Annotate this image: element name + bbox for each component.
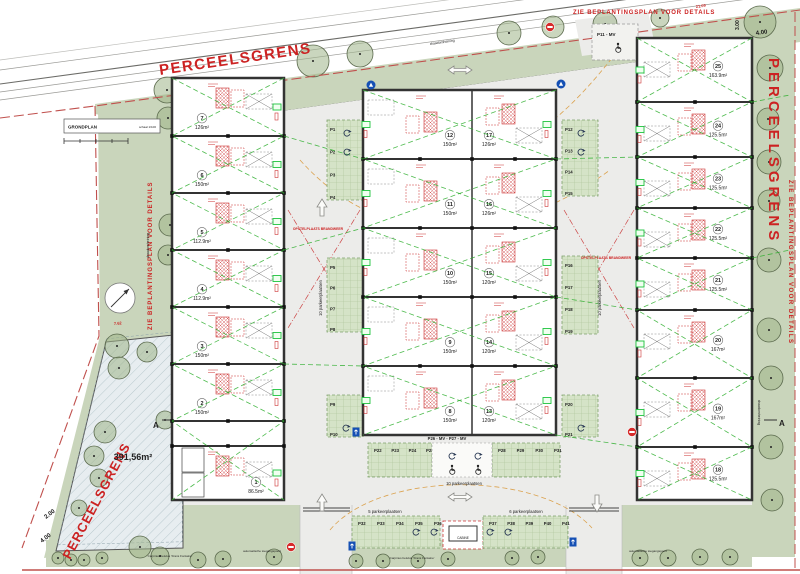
unit-number: 7	[200, 116, 203, 122]
tree-icon	[84, 446, 104, 466]
parking-space-label: P41	[562, 521, 570, 526]
tree-icon	[96, 552, 108, 564]
parking-space-label: P22	[374, 448, 382, 453]
parking-court-left-top: P1P2P3P4	[327, 120, 363, 200]
tree-icon	[94, 421, 116, 443]
dim-top-length: 21.09	[695, 3, 706, 9]
unit-number: 14	[486, 340, 493, 346]
parking-space-label: P1	[330, 127, 336, 132]
tree-icon	[190, 552, 206, 568]
parking-space-label: P13	[565, 148, 573, 153]
parking-space-label: P16	[565, 263, 573, 268]
unit-area: 125.5m²	[709, 186, 728, 192]
fire-note-right: OPSTELPLAATS BRANDWEER	[581, 256, 632, 260]
parking-count-south-right: 6 parkeerplaatsen	[509, 509, 543, 514]
unit-area: 150m²	[195, 410, 210, 416]
unit-area: 150m²	[443, 418, 458, 424]
mandatory-direction-sign-icon	[367, 81, 376, 90]
unit-number: 21	[715, 278, 721, 284]
p11-mv-label: P11 - MV	[597, 32, 616, 37]
parking-space-label: P6	[330, 286, 336, 291]
one-way-sign-icon	[570, 538, 577, 547]
cabine-label: CABINE	[457, 536, 469, 540]
unit-area: 120m²	[482, 280, 497, 286]
unit-area: 163.9m²	[709, 73, 728, 79]
unit-area: 150m²	[443, 211, 458, 217]
boundary-label-right: PERCEELSGRENS	[765, 58, 782, 244]
tree-icon	[215, 551, 231, 567]
tree-species-label-1: Carpinus betulus 'Frans Fontaine'	[148, 554, 193, 558]
green-area-label: 391,56m²	[114, 452, 153, 462]
buildings-layer: 7126m²6150m²5112.9m²4112.9m²3150m²2150m²…	[170, 38, 754, 500]
parking-south-row-right: P37P38P39P40P41	[483, 516, 570, 548]
parking-count-south-left: 5 parkeerplaatsen	[368, 509, 402, 514]
planting-note-top: ZIE BEPLANTINGSPLAN VOOR DETAILS	[573, 10, 715, 16]
tree-icon	[757, 318, 781, 342]
tree-species-label-2: Carpinus betulus 'Frans Fontaine'	[390, 556, 435, 560]
parking-space-label: P20	[565, 402, 573, 407]
parking-mv-section	[432, 443, 492, 477]
no-entry-sign-icon	[287, 543, 296, 552]
parking-count-left-court: 10 parkeerplaatsen	[318, 279, 323, 316]
unit-number: 24	[715, 124, 722, 130]
parking-space-label: P36	[434, 521, 442, 526]
parking-count-right-court: 10 parkeerplaatsen	[597, 279, 602, 316]
parking-court-left-mid: P5P6P7P8	[327, 258, 363, 332]
parking-inner-row-left: P22P23P24P25	[368, 443, 434, 477]
dim-top-height: 3.00	[735, 20, 741, 30]
no-entry-sign-icon	[546, 23, 555, 32]
parking-space-label: P34	[396, 521, 404, 526]
tree-icon	[759, 366, 783, 390]
unit-area: 150m²	[443, 142, 458, 148]
tree-icon	[531, 550, 545, 564]
tree-icon	[441, 552, 455, 566]
parking-south-row-left: P32P33P34P35P36	[352, 516, 442, 548]
unit-area: 150m²	[195, 182, 210, 188]
tree-icon	[349, 554, 363, 568]
parking-space-label: P29	[517, 448, 525, 453]
titleblock-title: GRONDPLAN	[68, 125, 97, 130]
fire-note-left: OPSTELPLAATS BRANDWEER	[293, 227, 344, 231]
unit-area: 120m²	[482, 349, 497, 355]
unit-area: 150m²	[443, 349, 458, 355]
gate-label-right: automatische toegangspoort	[629, 549, 667, 553]
unit-area: 112.9m²	[193, 296, 211, 302]
planting-note-right: ZIE BEPLANTINGSPLAN VOOR DETAILS	[787, 180, 793, 345]
tree-icon	[759, 435, 783, 459]
unit-area: 150m²	[195, 353, 210, 359]
parking-space-label: P35	[415, 521, 423, 526]
parking-space-label: P19	[565, 329, 573, 334]
tree-icon	[105, 334, 129, 358]
parking-space-label: P32	[358, 521, 366, 526]
tree-icon	[497, 21, 521, 45]
fence-label-left: draadomheining	[146, 233, 150, 258]
titleblock-scale: schaal 1/100	[139, 125, 156, 129]
section-marker-left: A	[153, 421, 159, 430]
parking-space-label: P3	[330, 172, 336, 177]
unit-number: 23	[715, 177, 721, 183]
parking-space-label: P8	[330, 327, 336, 332]
parking-space-label: P33	[377, 521, 385, 526]
one-way-sign-icon	[349, 542, 356, 551]
parking-space-label: P37	[489, 521, 497, 526]
parking-space-label: P5	[330, 265, 336, 270]
parking-space-label: P28	[498, 448, 506, 453]
tree-icon	[108, 357, 130, 379]
unit-number: 10	[447, 271, 453, 277]
tree-icon	[376, 554, 390, 568]
unit-number: 8	[448, 409, 451, 415]
parking-space-label: P31	[554, 448, 562, 453]
unit-area: 125.5m²	[709, 236, 728, 242]
tree-icon	[757, 248, 781, 272]
tree-icon	[78, 554, 90, 566]
unit-area: 125.5m²	[709, 133, 728, 139]
tree-icon	[347, 41, 373, 67]
unit-number: 12	[447, 133, 453, 139]
site-plan: P1P2P3P4P5P6P7P8P9P10P12P13P14P15P16P17P…	[0, 0, 800, 574]
unit-area: 86.5m²	[248, 489, 264, 495]
site-plan-drawing: P1P2P3P4P5P6P7P8P9P10P12P13P14P15P16P17P…	[0, 0, 800, 574]
dim-left-length: 7.62	[114, 320, 123, 326]
unit-area: 167m²	[711, 416, 726, 422]
unit-number: 20	[715, 338, 721, 344]
parking-space-label: P40	[544, 521, 552, 526]
unit-area: 126m²	[195, 125, 210, 131]
parking-space-label: P14	[565, 170, 573, 175]
section-marker-right: A	[779, 419, 785, 428]
unit-area: 167m²	[711, 347, 726, 353]
fence-label-right: draadomheining	[757, 400, 761, 425]
parking-space-label: P10	[330, 432, 338, 437]
parking-space-label: P18	[565, 307, 573, 312]
mv-row-label: P26 - MV - P27 - MV	[428, 436, 467, 441]
unit-number: 18	[715, 468, 721, 474]
tree-icon	[137, 342, 157, 362]
unit-area: 126m²	[482, 142, 497, 148]
parking-court-right-mid: P16P17P18P19	[562, 256, 598, 334]
unit-area: 112.9m²	[193, 239, 211, 245]
parking-space-label: P15	[565, 191, 573, 196]
parking-space-label: P17	[565, 285, 573, 290]
parking-space-label: P39	[526, 521, 534, 526]
parking-space-label: P4	[330, 195, 336, 200]
parking-space-label: P9	[330, 402, 336, 407]
parking-space-label: P23	[391, 448, 399, 453]
parking-space-label: P24	[409, 448, 417, 453]
parking-space-label: P30	[535, 448, 543, 453]
parking-space-label: P12	[565, 127, 573, 132]
unit-number: 22	[715, 227, 721, 233]
tree-icon	[692, 549, 708, 565]
unit-area: 120m²	[482, 418, 497, 424]
unit-number: 11	[447, 202, 453, 208]
no-entry-sign-icon	[628, 428, 637, 437]
parking-count-inner: 10 parkeerplaatsen	[446, 481, 483, 486]
tree-icon	[505, 551, 519, 565]
tree-icon	[722, 549, 738, 565]
parking-inner-row-right: P28P29P30P31	[492, 443, 562, 477]
parking-space-label: P7	[330, 306, 336, 311]
one-way-sign-icon	[353, 428, 360, 437]
gate-label-left: automatische toegangspoort	[243, 549, 281, 553]
unit-number: 25	[715, 64, 721, 70]
parking-space-label: P38	[507, 521, 515, 526]
unit-area: 126m²	[482, 211, 497, 217]
tree-icon	[761, 489, 783, 511]
fence-label-top: draadomheining	[430, 39, 455, 46]
unit-number: 19	[715, 407, 721, 413]
unit-number: 9	[448, 340, 451, 346]
mandatory-direction-sign-icon	[557, 80, 566, 89]
unit-area: 150m²	[443, 280, 458, 286]
